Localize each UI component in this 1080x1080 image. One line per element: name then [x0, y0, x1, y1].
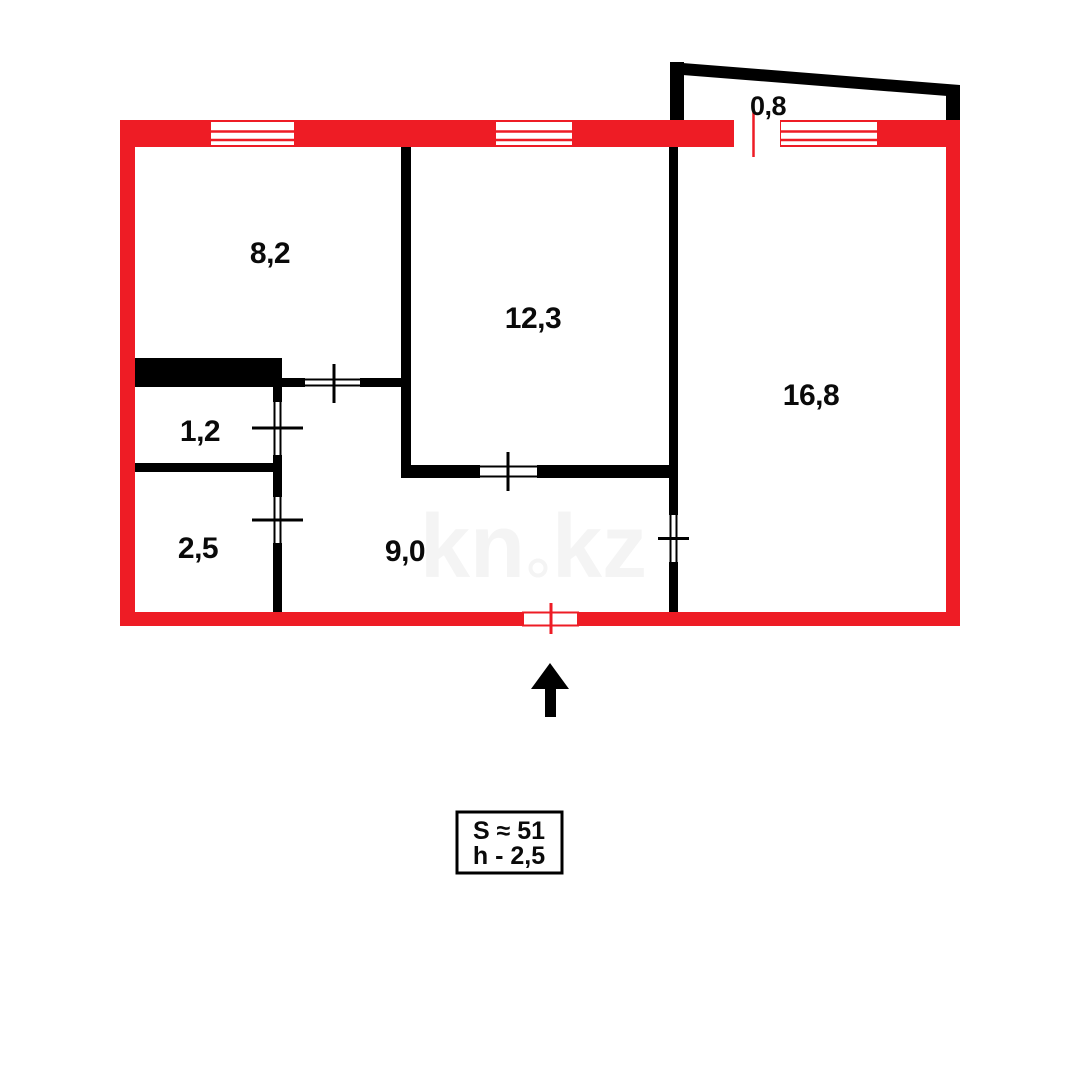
room-label-12-3: 12,3	[505, 302, 561, 335]
room-label-16-8: 16,8	[783, 379, 839, 412]
legend-ceiling-height: h - 2,5	[473, 842, 545, 870]
wall-below-12-3-left	[401, 465, 480, 478]
wall-16-8-upper	[669, 147, 678, 515]
legend-box: S ≈ 51 h - 2,5	[457, 812, 562, 873]
floorplan-drawing: kn kz	[0, 0, 1080, 1080]
floorplan-page: kn kz	[0, 0, 1080, 1080]
wall-1-2-2-5	[135, 463, 273, 472]
wall-left-column-seg1	[273, 387, 282, 402]
wall-8-2-hall-right	[360, 378, 401, 387]
room-label-1-2: 1,2	[180, 415, 220, 448]
wall-8-2-12-3	[401, 147, 411, 478]
wall-closet-thick	[135, 358, 282, 387]
room-label-0-8: 0,8	[750, 91, 787, 121]
outer-wall-left	[120, 120, 135, 626]
room-label-2-5: 2,5	[178, 532, 218, 565]
wall-left-column-seg2	[273, 455, 282, 497]
balcony-wall-right	[946, 85, 960, 120]
page-background	[0, 0, 1080, 1080]
room-label-8-2: 8,2	[250, 237, 290, 270]
wall-left-column-seg3	[273, 543, 282, 612]
room-label-9-0: 9,0	[385, 535, 425, 568]
legend-total-area: S ≈ 51	[473, 817, 545, 845]
window-room-12-3	[495, 121, 573, 146]
wall-16-8-lower	[669, 562, 678, 612]
window-room-8-2	[210, 121, 295, 146]
wall-below-12-3-right	[537, 465, 678, 478]
window-balcony	[780, 121, 878, 146]
wall-8-2-hall-left	[282, 378, 305, 387]
watermark-text-right: kz	[552, 497, 647, 597]
watermark-text-left: kn	[420, 497, 525, 597]
outer-wall-right	[946, 120, 960, 626]
